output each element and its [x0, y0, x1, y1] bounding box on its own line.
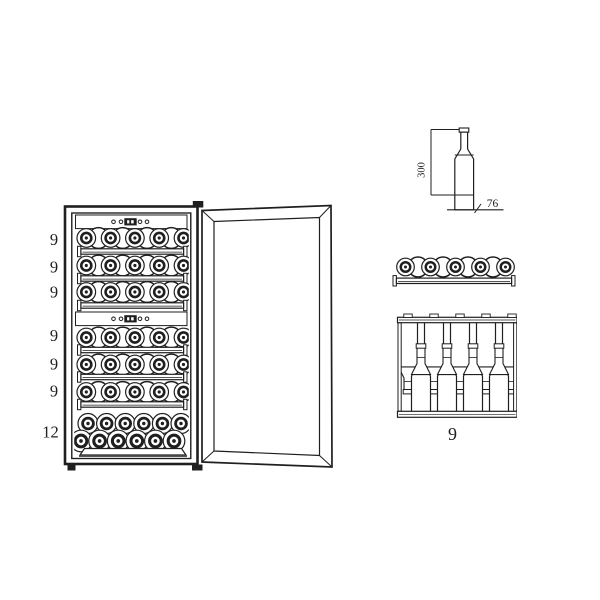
- door-open-view: [192, 201, 332, 471]
- shelf-rail: [393, 276, 515, 286]
- shelf-top-view: 9: [398, 314, 522, 444]
- bottle-dimension-drawing: 300 76: [417, 128, 504, 213]
- diagram-canvas: 300 76 9 9 9 9 9 9 9 12: [0, 0, 600, 600]
- bottle-diameter-label: 76: [487, 198, 499, 210]
- led-display-icon: [124, 218, 136, 225]
- bottle-outline: [455, 132, 474, 210]
- shelf-capacity-label: 9: [50, 283, 58, 302]
- bottle-cap: [459, 128, 469, 132]
- bottle-row: [77, 382, 193, 403]
- shelf-top-bottles: [398, 314, 522, 417]
- door-hinge-bottom: [192, 465, 203, 471]
- bottom-tray: [80, 449, 186, 456]
- shelf-capacity-label: 9: [50, 326, 58, 345]
- shelf-capacity-label: 9: [50, 355, 58, 374]
- wine-cooler-technical-drawing: 300 76 9 9 9 9 9 9 9 12: [0, 0, 600, 600]
- shelf-capacity-label: 9: [50, 382, 58, 401]
- bottle-row: [77, 228, 193, 249]
- cabinet-foot: [68, 465, 76, 471]
- shelf-front-bottles: [393, 257, 515, 286]
- door-hinge-top: [193, 201, 204, 208]
- bottle-row: [77, 354, 193, 375]
- capacity-labels: 9 9 9 9 9 9 12: [42, 230, 59, 442]
- bottle-row: [77, 282, 193, 303]
- shelf-capacity-label: 9: [50, 258, 58, 277]
- shelf-capacity-label: 9: [448, 424, 457, 444]
- bottom-capacity-label: 12: [42, 423, 59, 442]
- control-panel: [76, 215, 188, 229]
- bottle-row: [397, 257, 515, 277]
- bottle-row: [77, 255, 193, 276]
- control-panel: [76, 312, 188, 326]
- cabinet-interior: [70, 215, 193, 456]
- bottle-height-label: 300: [417, 162, 428, 178]
- dimension-tick: [475, 204, 482, 213]
- shelf-capacity-label: 9: [50, 230, 58, 249]
- rack-side-rail: [514, 323, 517, 412]
- rack-side-rail: [398, 323, 401, 412]
- bottle-row: [77, 327, 193, 348]
- shelf-front-view: [393, 257, 515, 286]
- door-inner-panel: [214, 218, 320, 456]
- cabinet-front-view: [65, 207, 198, 471]
- led-display-icon: [124, 315, 136, 322]
